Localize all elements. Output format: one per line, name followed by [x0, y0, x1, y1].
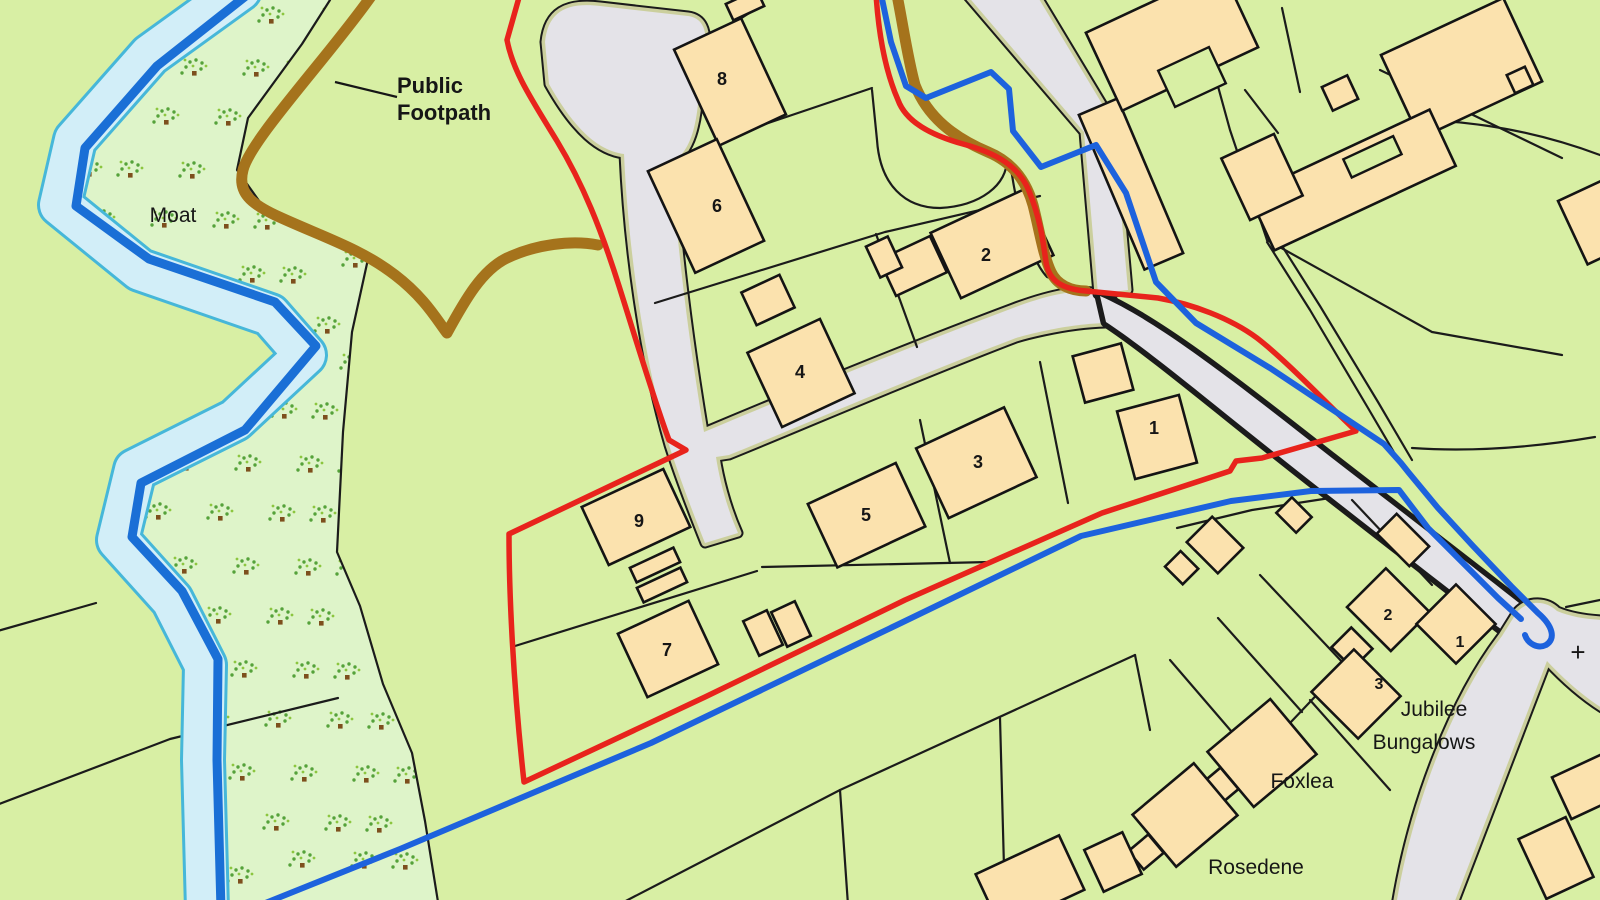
building-5-number: 5 [861, 505, 871, 525]
building-3-number: 3 [973, 452, 983, 472]
rosedene-label: Rosedene [1208, 856, 1304, 879]
building-2-number: 2 [981, 245, 991, 265]
building-6-number: 6 [712, 196, 722, 216]
grid-cross-mark: + [1570, 637, 1585, 667]
building-7-number: 7 [662, 640, 672, 660]
public-footpath-label-line2: Footpath [397, 100, 491, 125]
planning-location-map: MoatPublicFootpathJubileeBungalowsFoxlea… [0, 0, 1600, 900]
jubilee-bungalows-label-line2: Bungalows [1373, 731, 1476, 754]
bungalow-2-number: 2 [1384, 607, 1393, 624]
bungalow-1-number: 1 [1456, 634, 1465, 651]
building-9-number: 9 [634, 511, 644, 531]
bungalow-3-number: 3 [1375, 676, 1384, 693]
foxlea-label: Foxlea [1270, 770, 1333, 793]
jubilee-bungalows-label-line1: Jubilee [1401, 698, 1468, 721]
building-4-number: 4 [795, 362, 805, 382]
moat-label: Moat [150, 204, 197, 227]
building-1-number: 1 [1149, 418, 1159, 438]
public-footpath-label-line1: Public [397, 73, 463, 98]
building-8-number: 8 [717, 69, 727, 89]
